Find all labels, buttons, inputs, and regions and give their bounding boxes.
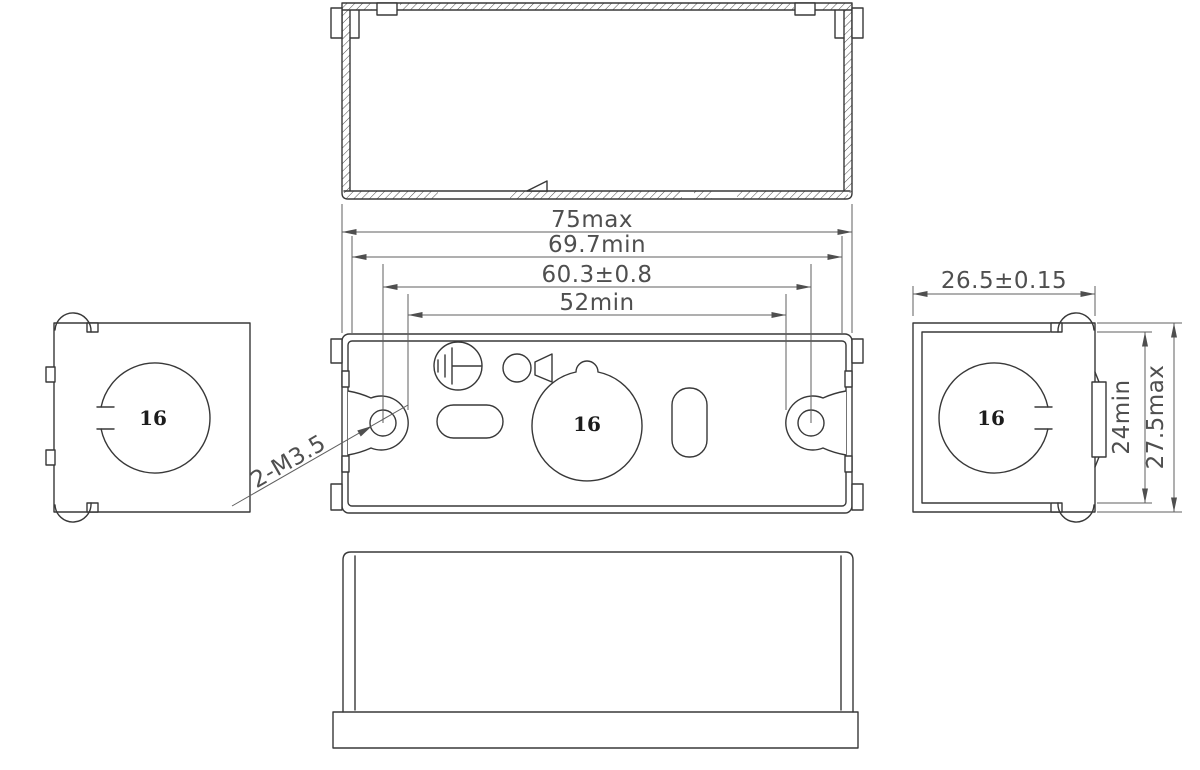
bottom-view [333, 552, 858, 748]
dim-label-width-max: 75max [551, 207, 633, 233]
vertical-slot [672, 388, 707, 457]
dim-label-side-depth-min: 24min [1109, 379, 1135, 454]
dim-label-side-depth-max: 27.5max [1143, 365, 1169, 470]
dim-label-hole-spacing: 60.3±0.8 [541, 262, 652, 288]
dimension-slot-span: 52min [408, 290, 786, 410]
dimension-hole-spacing: 60.3±0.8 [383, 262, 811, 423]
earth-ground-symbol [434, 342, 482, 390]
top-section-view [331, 3, 863, 199]
side-tab-left [331, 8, 342, 38]
left-side-view: 16 [46, 313, 250, 522]
knockout-label-left: 16 [139, 406, 167, 430]
snap-clip-right [795, 3, 815, 15]
right-side-view: 16 [913, 313, 1106, 522]
cable-entry-symbol [503, 354, 552, 382]
screw-spec-label: 2-M3.5 [246, 430, 330, 494]
side-tab-right [852, 8, 863, 38]
dimension-side-width: 26.5±0.15 [913, 268, 1095, 316]
edge-boss [1092, 382, 1106, 457]
dim-label-slot-span: 52min [559, 290, 634, 316]
drawing-canvas: 16 16 16 75max [0, 0, 1200, 770]
snap-clip-left [377, 3, 397, 15]
horizontal-slot [437, 405, 503, 438]
bottom-view-outline [333, 552, 858, 748]
knockout-label-right: 16 [977, 406, 1005, 430]
right-wall-hatch [844, 3, 852, 193]
screw-callout: 2-M3.5 [232, 405, 408, 506]
technical-drawing: 16 16 16 75max [0, 0, 1200, 770]
front-view: 16 [331, 334, 863, 513]
bottom-wall-hatch [346, 191, 438, 199]
knockout-label-front: 16 [573, 412, 601, 436]
dim-label-side-width: 26.5±0.15 [941, 268, 1067, 294]
left-wall-hatch [342, 3, 350, 193]
dim-label-width-min: 69.7min [548, 232, 646, 258]
latch-flag [527, 181, 547, 191]
outer-boundary [342, 3, 852, 199]
